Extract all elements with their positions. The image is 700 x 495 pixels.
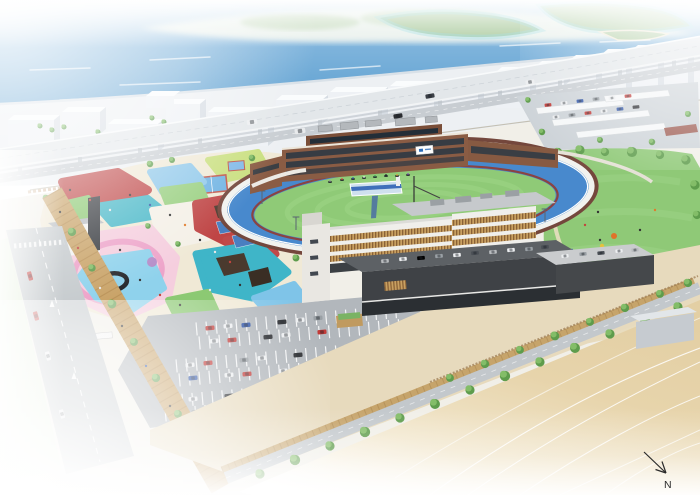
car xyxy=(453,253,461,257)
entrance-planter xyxy=(336,312,363,328)
person xyxy=(119,249,121,251)
car xyxy=(381,259,389,263)
car xyxy=(188,396,197,401)
car xyxy=(277,319,286,324)
car xyxy=(561,254,568,258)
person xyxy=(149,204,151,206)
car xyxy=(293,352,302,357)
car xyxy=(584,111,591,115)
person xyxy=(639,229,641,231)
car xyxy=(471,251,479,255)
car xyxy=(205,325,214,330)
person xyxy=(229,261,231,263)
judges-box xyxy=(396,176,400,186)
car xyxy=(541,245,549,249)
car xyxy=(227,337,236,342)
car xyxy=(616,107,623,111)
car xyxy=(209,338,218,343)
car xyxy=(576,99,583,103)
car xyxy=(632,105,639,109)
distant-island-green xyxy=(240,14,360,30)
sign-logo xyxy=(419,149,423,152)
person xyxy=(145,365,147,367)
sign-board xyxy=(416,145,434,154)
car xyxy=(223,323,232,328)
person xyxy=(169,214,171,216)
person xyxy=(599,239,601,241)
car xyxy=(600,109,607,113)
person xyxy=(584,224,586,226)
tower-window xyxy=(310,239,318,244)
car xyxy=(263,334,272,339)
person xyxy=(214,251,216,253)
car xyxy=(242,371,251,376)
tower-window xyxy=(310,271,318,276)
stair-tower xyxy=(302,212,330,303)
car xyxy=(568,113,575,117)
zone-purple xyxy=(147,257,157,267)
car xyxy=(295,317,304,322)
car xyxy=(317,329,326,334)
person xyxy=(209,289,211,291)
wood-accent-panel xyxy=(384,280,407,291)
car xyxy=(525,247,533,251)
car xyxy=(507,248,515,252)
car xyxy=(560,101,567,105)
person xyxy=(597,211,599,213)
person xyxy=(179,304,181,306)
person xyxy=(184,224,186,226)
compass-label: N xyxy=(664,479,672,491)
person xyxy=(77,247,79,249)
person xyxy=(159,294,161,296)
person xyxy=(199,239,201,241)
car xyxy=(552,115,559,119)
car xyxy=(281,332,290,337)
tower-front xyxy=(302,223,330,303)
person xyxy=(59,211,61,213)
car xyxy=(188,375,197,380)
car xyxy=(239,357,248,362)
car xyxy=(203,360,212,365)
person xyxy=(69,189,71,191)
car xyxy=(579,252,586,256)
car xyxy=(435,254,443,258)
person xyxy=(121,325,123,327)
car xyxy=(313,315,322,320)
car xyxy=(608,96,615,100)
car xyxy=(592,97,599,101)
stadium-sign xyxy=(416,145,434,154)
car xyxy=(597,251,604,255)
person xyxy=(99,287,101,289)
car xyxy=(489,250,497,254)
tower-window xyxy=(310,255,318,260)
person xyxy=(129,194,131,196)
car xyxy=(615,249,622,253)
car xyxy=(544,103,551,107)
car xyxy=(257,355,266,360)
rendering-canvas: N xyxy=(0,0,700,495)
car xyxy=(399,257,407,261)
car xyxy=(224,372,233,377)
car xyxy=(631,248,638,252)
person xyxy=(109,209,111,211)
person xyxy=(239,284,241,286)
car xyxy=(241,322,250,327)
person xyxy=(654,209,656,211)
playground-equipment xyxy=(611,233,617,239)
person xyxy=(169,405,171,407)
car xyxy=(624,94,631,98)
mini-court xyxy=(228,161,245,171)
person xyxy=(89,199,91,201)
car xyxy=(185,362,194,367)
person xyxy=(139,279,141,281)
aerial-rendering: N xyxy=(0,0,700,495)
